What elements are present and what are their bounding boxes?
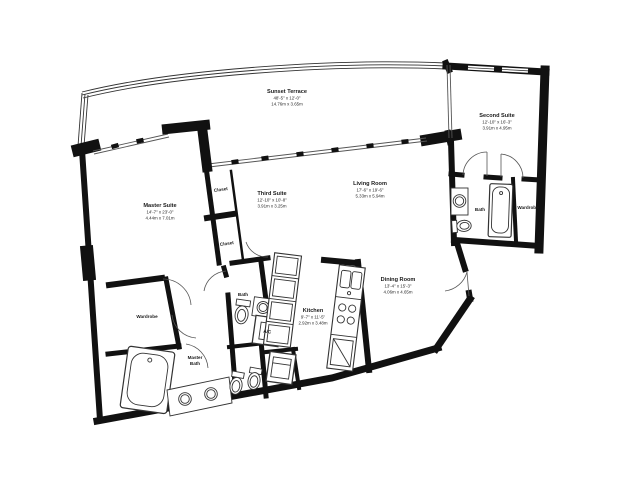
svg-text:17'-6" x 19'-6": 17'-6" x 19'-6": [356, 188, 383, 193]
svg-text:Kitchen: Kitchen: [303, 308, 324, 314]
wall-segment: [446, 66, 546, 72]
door-arc: [501, 154, 523, 178]
wall-segment: [109, 278, 162, 285]
wall-segment: [82, 150, 100, 420]
svg-text:Master Suite: Master Suite: [143, 203, 176, 209]
wall-segment: [486, 177, 500, 178]
wall-segment: [87, 252, 89, 274]
label-master-bath-line2: Bath: [190, 361, 200, 366]
master-bath-vanity: [167, 377, 232, 416]
center-bath-toilet: [233, 299, 250, 325]
wall-segment: [513, 179, 516, 241]
room-label-second-suite: Second Suite 12'-10" x 16'-3" 3.91m x 4.…: [479, 113, 514, 131]
label-master-bath-line1: Master: [188, 355, 203, 360]
svg-text:4.44m x 7.01m: 4.44m x 7.01m: [145, 216, 174, 221]
door-arc: [204, 271, 226, 291]
svg-text:Dining Room: Dining Room: [381, 277, 416, 283]
svg-text:Living Room: Living Room: [353, 181, 387, 187]
floor-plan-page: Sunset Terrace 48'-5" x 12'-0" 14.76m x …: [0, 0, 640, 480]
wall-segment: [78, 146, 94, 150]
svg-text:3.91m x 3.25m: 3.91m x 3.25m: [257, 204, 286, 209]
wall-segment: [166, 279, 179, 347]
svg-text:48'-5" x 12'-0": 48'-5" x 12'-0": [273, 96, 300, 101]
wall-segment: [436, 299, 470, 349]
door-arc: [463, 152, 487, 175]
room-label-master-suite: Master Suite 14'-7" x 23'-0" 4.44m x 7.0…: [143, 203, 176, 221]
wall-segment: [539, 70, 545, 249]
wall-segment: [207, 214, 233, 218]
room-label-kitchen: Kitchen 9'-7" x 11'-5" 2.92m x 3.48m: [298, 308, 327, 326]
right-bath-toilet: [452, 219, 472, 232]
label-wardrobe-left: Wardrobe: [136, 314, 158, 319]
room-label-living-room: Living Room 17'-6" x 19'-6" 5.33m x 5.94…: [353, 181, 387, 199]
svg-text:9'-7" x 11'-5": 9'-7" x 11'-5": [301, 315, 326, 320]
wall-segment: [324, 260, 356, 263]
room-label-dining-room: Dining Room 13'-4" x 15'-3" 4.06m x 4.65…: [381, 277, 416, 295]
svg-text:4.06m x 4.65m: 4.06m x 4.65m: [383, 290, 412, 295]
washer-dryer: [266, 351, 296, 384]
label-bath-center: Bath: [238, 292, 248, 297]
wall-segment: [524, 179, 540, 180]
svg-text:5.33m x 5.94m: 5.33m x 5.94m: [355, 194, 384, 199]
wall-segment: [202, 127, 207, 167]
svg-text:13'-4" x 15'-3": 13'-4" x 15'-3": [384, 284, 411, 289]
svg-text:Sunset Terrace: Sunset Terrace: [267, 89, 307, 95]
svg-text:Third Suite: Third Suite: [257, 191, 286, 197]
room-label-sunset-terrace: Sunset Terrace 48'-5" x 12'-0" 14.76m x …: [267, 89, 307, 107]
svg-text:14.76m x 3.65m: 14.76m x 3.65m: [271, 102, 303, 107]
svg-text:Second Suite: Second Suite: [479, 113, 514, 119]
wall-segment: [454, 240, 540, 246]
floor-plan-canvas: Sunset Terrace 48'-5" x 12'-0" 14.76m x …: [0, 0, 640, 480]
kitchen-counter: [327, 265, 365, 371]
wall-segment: [457, 243, 465, 269]
svg-text:2.92m x 3.48m: 2.92m x 3.48m: [298, 321, 327, 326]
master-bathtub: [120, 346, 175, 414]
svg-text:14'-7" x 23'-0": 14'-7" x 23'-0": [146, 210, 173, 215]
door-arc: [445, 272, 467, 291]
wall-segment: [451, 174, 462, 175]
label-wardrobe-right: Wardrobe: [517, 205, 539, 210]
svg-text:12'-10" x 16'-3": 12'-10" x 16'-3": [482, 120, 512, 125]
door-arc: [246, 242, 268, 257]
label-closet-upper: Closet: [213, 186, 228, 193]
svg-text:12'-10" x 10'-8": 12'-10" x 10'-8": [257, 198, 287, 203]
label-bath-right: Bath: [475, 207, 485, 212]
wall-segment: [261, 262, 266, 300]
label-closet-lower: Closet: [219, 240, 234, 247]
right-bath-vanity: [451, 188, 468, 215]
room-label-third-suite: Third Suite 12'-10" x 10'-8" 3.91m x 3.2…: [257, 191, 287, 209]
svg-text:3.91m x 4.95m: 3.91m x 4.95m: [482, 126, 511, 131]
fridge: [330, 339, 353, 367]
terrace-railing: [78, 62, 446, 146]
master-wc-bidet: [247, 367, 263, 390]
right-bathtub: [488, 184, 513, 238]
